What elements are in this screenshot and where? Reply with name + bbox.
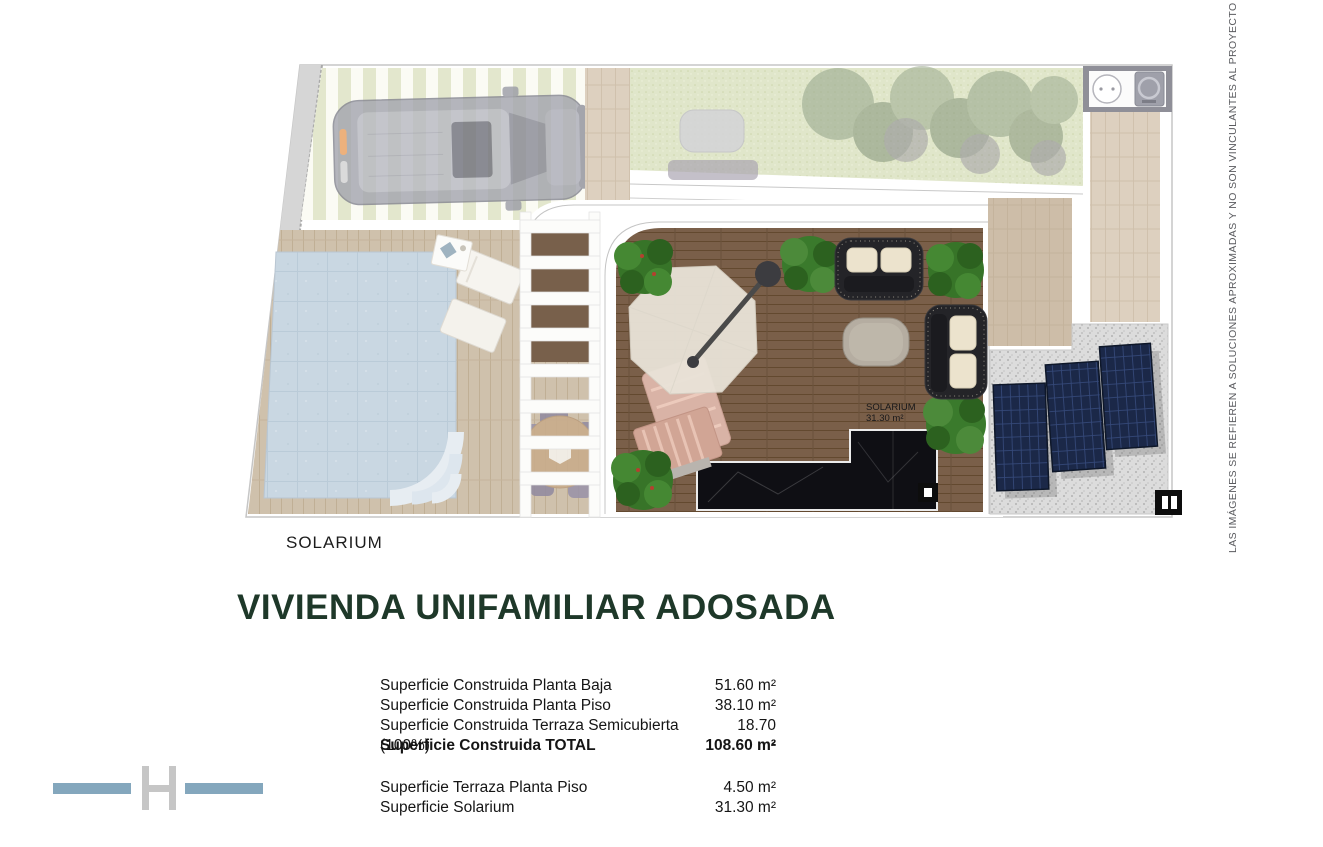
solarium-caption: SOLARIUM [286,533,383,553]
car-top-view [332,85,589,216]
row-value: 31.30 m² [715,798,776,818]
gravel-area [990,324,1182,515]
row-value: 18.70 m² [718,716,777,736]
grill-icon [1135,72,1164,106]
svg-text:SOLARIUM: SOLARIUM [866,402,916,413]
bush [780,236,839,293]
logo-bar-right [185,783,263,794]
wood-path [1090,112,1160,322]
sofa [835,238,923,300]
row-label: Superficie Construida Planta Baja [380,676,612,696]
sink-icon [1093,75,1121,103]
row-label: Superficie Terraza Planta Piso [380,778,587,798]
floor-plan: SOLARIUM 31.30 m² [238,62,1192,532]
meter-icon [1155,490,1182,515]
bush [614,239,673,296]
row-label: Superficie Construida Terraza Semicubier… [380,716,718,736]
coffee-table [843,318,909,366]
row-label: Superficie Construida TOTAL [380,736,596,756]
sofa [925,305,987,399]
disclaimer-text: LAS IMÁGENES SE REFIEREN A SOLUCIONES AP… [1227,28,1239,553]
outdoor-kitchen [1083,66,1172,112]
bush [611,450,673,510]
pool [264,252,456,498]
row-label: Superficie Solarium [380,798,514,818]
table-row-total: Superficie Construida TOTAL 108.60 m² [380,736,776,756]
table-row: Superficie Construida Planta Piso 38.10 … [380,696,776,716]
row-value: 51.60 m² [715,676,776,696]
page-title: VIVIENDA UNIFAMILIAR ADOSADA [237,588,836,628]
solarium-deck: SOLARIUM 31.30 m² [611,228,987,512]
logo-bar-left [53,783,131,794]
row-label: Superficie Construida Planta Piso [380,696,611,716]
brand-logo [53,765,265,815]
svg-text:31.30 m²: 31.30 m² [866,413,904,424]
row-value: 38.10 m² [715,696,776,716]
solar-panel [1099,343,1166,458]
bush [923,394,986,454]
pergola [520,212,600,517]
table-row: Superficie Solarium 31.30 m² [380,798,776,818]
wood-walkway [585,68,630,220]
row-value: 4.50 m² [723,778,776,798]
area-table: Superficie Construida Planta Baja 51.60 … [380,676,776,818]
table-row: Superficie Construida Terraza Semicubier… [380,716,776,736]
brochure-page: SOLARIUM 31.30 m² SOLARIUM LAS IMÁGENES … [0,0,1323,847]
row-value: 108.60 m² [705,736,776,756]
bush [926,242,984,299]
drain-icon [918,483,938,502]
table-row: Superficie Terraza Planta Piso 4.50 m² [380,778,776,798]
table-row: Superficie Construida Planta Baja 51.60 … [380,676,776,696]
logo-letter-h [142,766,176,810]
